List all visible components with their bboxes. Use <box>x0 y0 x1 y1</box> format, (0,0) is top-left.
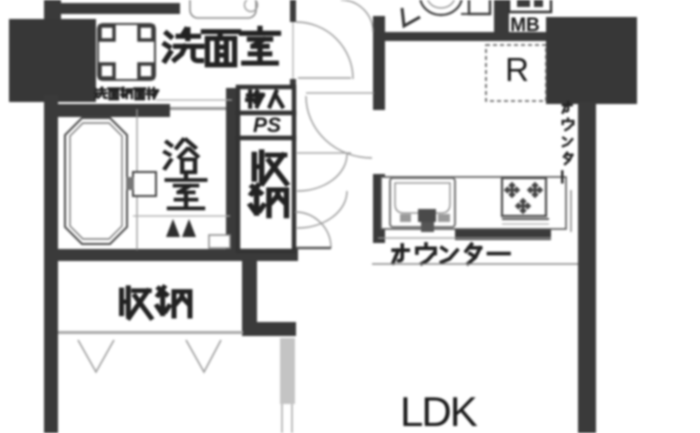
svg-text:MB: MB <box>510 15 540 36</box>
svg-text:PS: PS <box>253 114 281 137</box>
svg-text:R: R <box>505 51 529 88</box>
svg-text:LDK: LDK <box>400 388 478 433</box>
